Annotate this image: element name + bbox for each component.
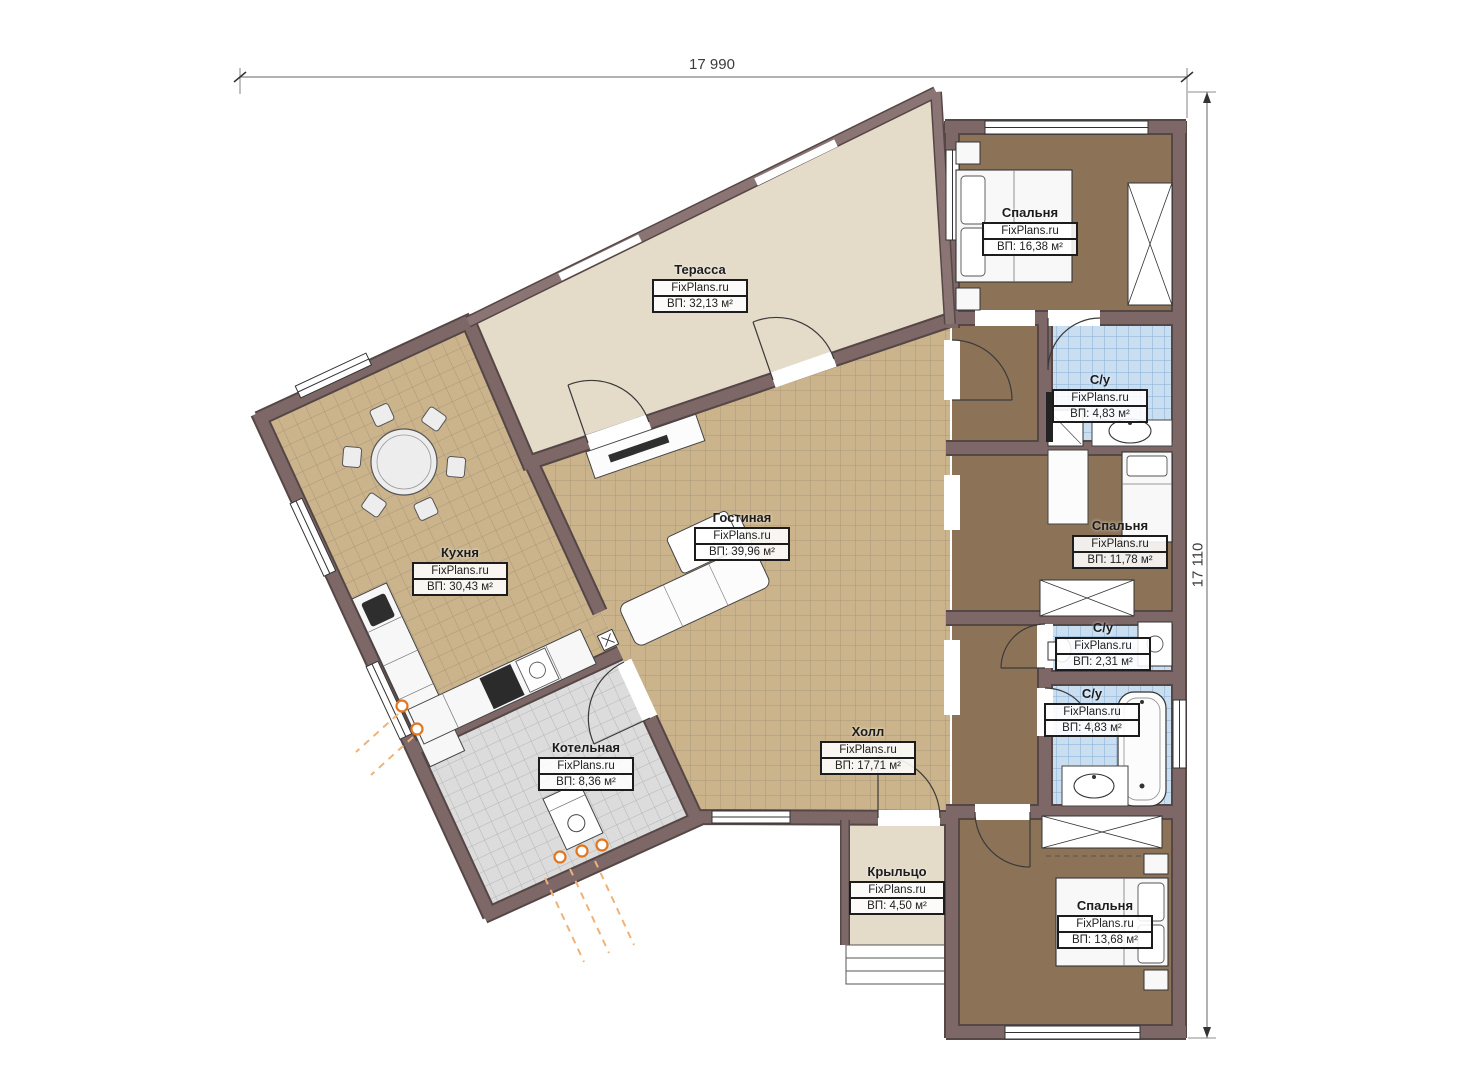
dimension-width-label: 17 990 bbox=[689, 56, 735, 73]
room-area: ВП: 13,68 м² bbox=[1059, 933, 1151, 947]
wardrobe-middle bbox=[1040, 580, 1134, 616]
corridor-floor bbox=[952, 618, 1045, 812]
room-label-bedroom-bottom: Спальня FixPlans.ru ВП: 13,68 м² bbox=[1057, 898, 1153, 949]
room-area: ВП: 2,31 м² bbox=[1057, 655, 1149, 669]
room-label-kitchen: Кухня FixPlans.ru ВП: 30,43 м² bbox=[412, 545, 508, 596]
room-name: Гостиная bbox=[694, 510, 790, 525]
room-area: ВП: 32,13 м² bbox=[654, 297, 746, 311]
brand-watermark: FixPlans.ru bbox=[654, 281, 746, 297]
brand-watermark: FixPlans.ru bbox=[1046, 705, 1138, 721]
room-area: ВП: 16,38 м² bbox=[984, 240, 1076, 254]
brand-watermark: FixPlans.ru bbox=[1057, 639, 1149, 655]
floor-plan: Терасса FixPlans.ru ВП: 32,13 м² Спальня… bbox=[0, 0, 1473, 1080]
room-label-bathroom-top: С/у FixPlans.ru ВП: 4,83 м² bbox=[1052, 372, 1148, 423]
room-area: ВП: 17,71 м² bbox=[822, 759, 914, 773]
brand-watermark: FixPlans.ru bbox=[1054, 391, 1146, 407]
room-name: С/у bbox=[1044, 686, 1140, 701]
room-name: Котельная bbox=[538, 740, 634, 755]
brand-watermark: FixPlans.ru bbox=[851, 883, 943, 899]
window-bedroom-bottom bbox=[1005, 1026, 1140, 1039]
brand-watermark: FixPlans.ru bbox=[696, 529, 788, 545]
room-label-porch: Крыльцо FixPlans.ru ВП: 4,50 м² bbox=[849, 864, 945, 915]
brand-watermark: FixPlans.ru bbox=[414, 564, 506, 580]
room-label-bedroom-top: Спальня FixPlans.ru ВП: 16,38 м² bbox=[982, 205, 1078, 256]
room-label-boiler-room: Котельная FixPlans.ru ВП: 8,36 м² bbox=[538, 740, 634, 791]
vestibule-floor bbox=[952, 318, 1045, 448]
brand-watermark: FixPlans.ru bbox=[822, 743, 914, 759]
room-label-hall: Холл FixPlans.ru ВП: 17,71 м² bbox=[820, 724, 916, 775]
room-label-bathroom-lower: С/у FixPlans.ru ВП: 4,83 м² bbox=[1044, 686, 1140, 737]
room-name: Спальня bbox=[1057, 898, 1153, 913]
room-area: ВП: 4,50 м² bbox=[851, 899, 943, 913]
room-name: С/у bbox=[1052, 372, 1148, 387]
brand-watermark: FixPlans.ru bbox=[540, 759, 632, 775]
room-area: ВП: 30,43 м² bbox=[414, 580, 506, 594]
window-bedroom-top bbox=[985, 121, 1148, 134]
dimension-height-label: 17 110 bbox=[1190, 543, 1207, 588]
room-name: Холл bbox=[820, 724, 916, 739]
room-name: Спальня bbox=[1072, 518, 1168, 533]
brand-watermark: FixPlans.ru bbox=[1074, 537, 1166, 553]
room-label-terrace: Терасса FixPlans.ru ВП: 32,13 м² bbox=[652, 262, 748, 313]
room-area: ВП: 8,36 м² bbox=[540, 775, 632, 789]
room-area: ВП: 11,78 м² bbox=[1074, 553, 1166, 567]
room-name: С/у bbox=[1055, 620, 1151, 635]
room-area: ВП: 4,83 м² bbox=[1046, 721, 1138, 735]
room-name: Спальня bbox=[982, 205, 1078, 220]
wardrobe-top bbox=[1128, 183, 1172, 305]
room-name: Терасса bbox=[652, 262, 748, 277]
window-hall bbox=[712, 811, 790, 823]
room-label-living-room: Гостиная FixPlans.ru ВП: 39,96 м² bbox=[694, 510, 790, 561]
room-area: ВП: 4,83 м² bbox=[1054, 407, 1146, 421]
brand-watermark: FixPlans.ru bbox=[1059, 917, 1151, 933]
room-area: ВП: 39,96 м² bbox=[696, 545, 788, 559]
room-name: Кухня bbox=[412, 545, 508, 560]
room-label-bedroom-middle: Спальня FixPlans.ru ВП: 11,78 м² bbox=[1072, 518, 1168, 569]
room-name: Крыльцо bbox=[849, 864, 945, 879]
room-label-bathroom-middle: С/у FixPlans.ru ВП: 2,31 м² bbox=[1055, 620, 1151, 671]
window-bathroom-lower bbox=[1173, 700, 1186, 768]
brand-watermark: FixPlans.ru bbox=[984, 224, 1076, 240]
porch-steps bbox=[846, 945, 952, 984]
